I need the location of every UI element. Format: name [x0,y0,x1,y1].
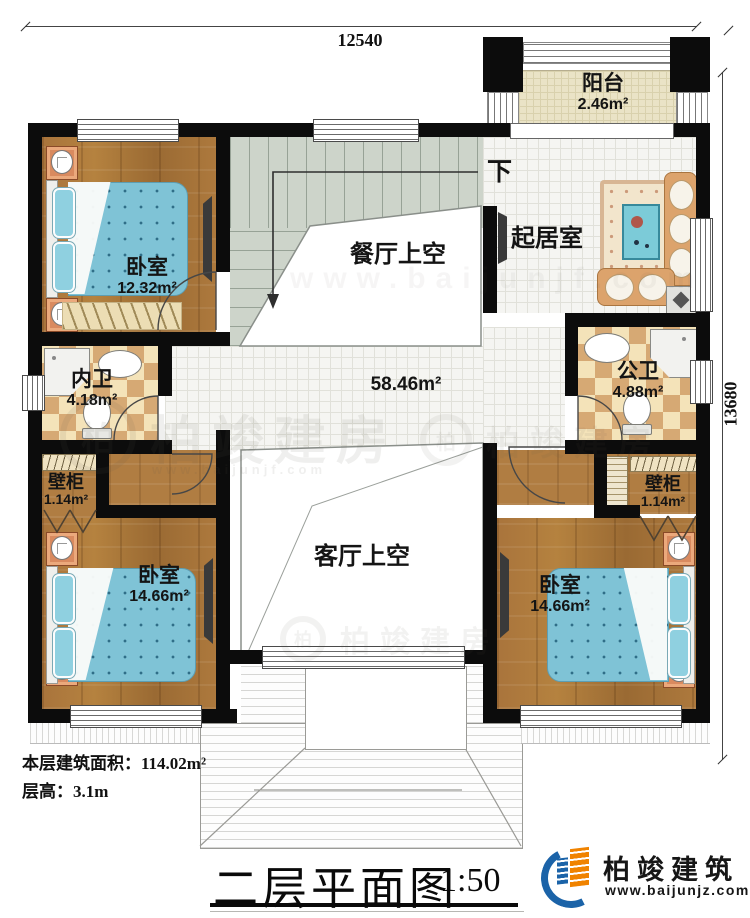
wall [28,332,230,346]
wall [158,332,172,396]
window [22,375,45,411]
title-underline [210,903,518,907]
sofa-cushion [605,274,634,301]
window [262,646,465,669]
tv [500,552,509,638]
pillow [668,628,690,678]
floor-area-line: 本层建筑面积：114.02m² [22,750,206,778]
stair-left-run [230,228,320,346]
sofa-cushion [638,274,667,301]
coffee-table [622,204,660,260]
wall [463,650,497,664]
closet-hanger-rod [630,456,698,472]
tv [203,196,212,282]
floor-hall [165,346,483,450]
table-decor [634,240,639,245]
floor-height-line: 层高：3.1m [22,778,206,806]
balcony-railing-top [523,42,672,64]
room-label-closet-left: 壁柜 1.14m² [44,472,88,508]
floor-area-value: 114.02m² [141,754,206,773]
sofa-cushion [669,180,694,210]
brand-building-icon [557,857,568,884]
window [77,119,179,142]
floor-height-label: 层高： [22,782,73,801]
dimension-right-value: 13680 [721,382,742,427]
wall [216,123,230,272]
floorplan-page: 12540 13680 [0,0,750,918]
brand-logo: 柏竣建筑 www.baijunjz.com [541,842,741,908]
room-label-bath-en-suite: 内卫 4.18m² [67,368,118,409]
dimension-top-value: 12540 [338,30,383,51]
wall [28,440,172,454]
table-decor [645,244,649,248]
room-label-bedroom-bl: 卧室 14.66m² [129,564,189,605]
wall [28,123,42,723]
window [313,119,419,142]
room-label-bath-public: 公卫 4.88m² [613,360,664,401]
wall [96,454,109,518]
brand-website: www.baijunjz.com [605,882,750,898]
room-label-bedroom-br: 卧室 14.66m² [530,574,590,615]
wall [228,650,262,664]
room-label-living-void: 客厅上空 [314,544,410,571]
nightstand [46,532,78,566]
nightstand [663,532,695,566]
lamp-icon [51,536,73,560]
toilet-tank [622,424,652,435]
floor-hall-east [483,327,565,447]
stair-down-label: 下 [487,152,512,188]
brand-building-icon [570,847,589,887]
room-label-closet-right: 壁柜 1.14m² [641,474,685,510]
stair-upper-run [230,137,483,228]
table-decor [631,216,643,228]
title-underline-thin [210,911,524,912]
window [690,360,713,404]
window [690,218,713,312]
tv [498,212,507,264]
wall [565,313,710,327]
pillow [53,628,75,678]
toilet-tank [82,428,112,439]
room-label-bedroom-tl: 卧室 12.32m² [117,256,177,297]
pillow [53,574,75,624]
drawing-title: 二层平面图 [213,852,458,917]
pillow [668,574,690,624]
pillow [53,188,75,238]
wall [109,505,216,518]
lamp-icon [51,150,73,174]
lamp-icon [668,536,690,560]
wall [216,430,230,723]
window [70,705,202,728]
tv [204,558,213,644]
balcony-railing-right [676,92,708,125]
room-label-balcony: 阳台 2.46m² [578,72,629,113]
wall [483,206,497,313]
dimension-tick [724,26,734,36]
wall [672,123,696,137]
shower-drain-icon [52,356,56,360]
floor-height-value: 3.1m [73,782,108,801]
dimension-line-top [25,26,697,27]
wall [565,327,578,396]
closet-hanger-rod [42,454,98,471]
room-label-hall-area: 58.46m² [371,374,442,395]
wall [696,123,710,723]
pillow [53,242,75,292]
balcony-column [483,37,523,92]
floor-info: 本层建筑面积：114.02m² 层高：3.1m [22,750,206,806]
end-table-decor [673,292,690,309]
wall [594,505,640,518]
wall [565,440,710,454]
floor-area-label: 本层建筑面积： [22,754,141,773]
wall [483,443,497,723]
room-label-dining-void: 餐厅上空 [350,242,446,269]
balcony-column [670,37,710,92]
room-label-living: 起居室 [511,226,583,253]
floor-corridor-left [109,450,216,505]
window [520,705,682,728]
balcony-door-track [510,123,674,139]
drawing-scale: 1:50 [440,862,500,900]
shower-drain-icon [682,337,686,341]
sink [584,333,630,363]
balcony-railing-left [487,92,519,125]
sofa-bottom-arm [597,268,675,306]
porch-void [305,666,467,750]
nightstand [46,146,78,180]
rug [62,302,182,330]
